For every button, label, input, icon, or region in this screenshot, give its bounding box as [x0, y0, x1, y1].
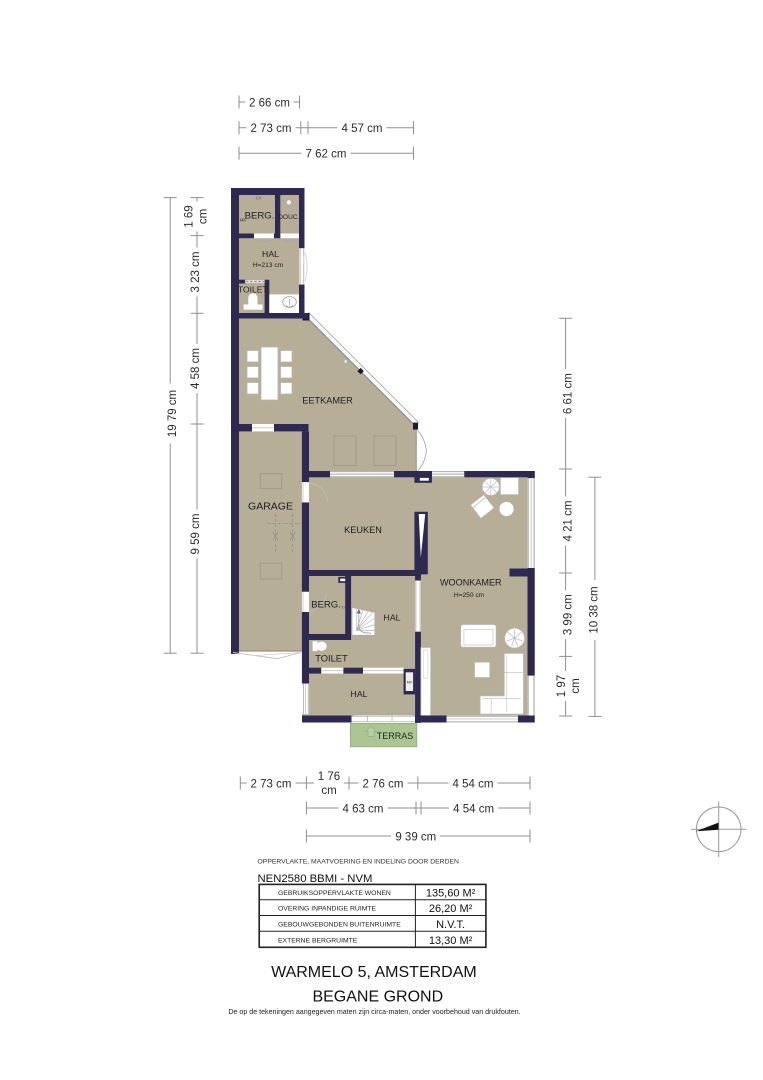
svg-text:TOILET: TOILET — [315, 654, 348, 664]
svg-text:9 59 cm: 9 59 cm — [190, 514, 202, 555]
svg-text:cm: cm — [198, 209, 210, 224]
svg-text:NEN2580 BBMI - NVM: NEN2580 BBMI - NVM — [258, 873, 373, 885]
svg-text:19 79 cm: 19 79 cm — [167, 390, 179, 437]
svg-text:GARAGE: GARAGE — [248, 500, 293, 512]
svg-text:N.V.T.: N.V.T. — [436, 919, 465, 931]
svg-text:HAL: HAL — [262, 249, 279, 259]
svg-text:H=213 cm: H=213 cm — [253, 262, 284, 269]
svg-text:3 99 cm: 3 99 cm — [562, 594, 574, 635]
svg-text:HAL: HAL — [351, 689, 368, 699]
svg-text:KEUKEN: KEUKEN — [344, 525, 382, 535]
svg-text:4 54 cm: 4 54 cm — [453, 804, 494, 816]
svg-text:1 76: 1 76 — [318, 771, 340, 783]
svg-text:De op de tekeningen aangegeven: De op de tekeningen aangegeven maten zij… — [228, 1008, 520, 1016]
svg-text:CV: CV — [256, 196, 262, 201]
svg-text:WOONKAMER: WOONKAMER — [440, 577, 502, 587]
svg-text:OPPERVLAKTE, MAATVOERING EN IN: OPPERVLAKTE, MAATVOERING EN INDELING DOO… — [258, 859, 460, 866]
svg-text:7 62 cm: 7 62 cm — [306, 149, 347, 161]
svg-text:TERRAS: TERRAS — [377, 731, 414, 741]
svg-text:BERG.: BERG. — [245, 211, 275, 222]
svg-text:HAL: HAL — [384, 613, 401, 623]
svg-text:1 69: 1 69 — [184, 205, 196, 227]
svg-text:4 63 cm: 4 63 cm — [343, 804, 384, 816]
svg-text:10 38 cm: 10 38 cm — [588, 586, 600, 633]
svg-text:4 54 cm: 4 54 cm — [453, 779, 494, 791]
svg-text:cm: cm — [570, 678, 582, 693]
svg-text:cm: cm — [321, 785, 336, 797]
svg-text:4 58 cm: 4 58 cm — [190, 348, 202, 389]
svg-text:2 66 cm: 2 66 cm — [249, 98, 290, 110]
svg-text:4 57 cm: 4 57 cm — [342, 123, 383, 135]
svg-text:2 73 cm: 2 73 cm — [251, 123, 292, 135]
svg-text:GEBRUIKSOPPERVLAKTE WONEN: GEBRUIKSOPPERVLAKTE WONEN — [278, 890, 391, 897]
svg-text:TOILET: TOILET — [238, 284, 268, 294]
svg-text:3 23 cm: 3 23 cm — [190, 252, 202, 293]
svg-text:MV: MV — [407, 681, 413, 685]
svg-text:BERG.: BERG. — [311, 599, 341, 610]
svg-text:EETKAMER: EETKAMER — [302, 395, 353, 405]
svg-text:6 61 cm: 6 61 cm — [562, 373, 574, 414]
svg-text:BEGANE GROND: BEGANE GROND — [312, 988, 443, 1005]
svg-text:GEBOUWGEBONDEN BUITENRUIMTE: GEBOUWGEBONDEN BUITENRUIMTE — [278, 921, 401, 928]
svg-text:2 76 cm: 2 76 cm — [363, 779, 404, 791]
svg-text:9 39 cm: 9 39 cm — [395, 832, 436, 844]
svg-text:1 97: 1 97 — [556, 675, 568, 697]
svg-text:DOUC.: DOUC. — [278, 214, 299, 221]
svg-text:4 21 cm: 4 21 cm — [563, 501, 575, 542]
svg-text:WARMELO 5, AMSTERDAM: WARMELO 5, AMSTERDAM — [271, 964, 477, 981]
svg-text:2 73 cm: 2 73 cm — [251, 779, 292, 791]
svg-text:135,60 M²: 135,60 M² — [426, 888, 476, 900]
svg-text:26,20 M²: 26,20 M² — [429, 903, 473, 915]
svg-text:MK: MK — [240, 218, 246, 223]
svg-text:EXTERNE BERGRUIMTE: EXTERNE BERGRUIMTE — [278, 937, 358, 944]
svg-text:OVERING INPANDIGE RUIMTE: OVERING INPANDIGE RUIMTE — [278, 906, 377, 913]
svg-text:H=250 cm: H=250 cm — [454, 592, 485, 599]
svg-text:13,30 M²: 13,30 M² — [429, 935, 473, 947]
